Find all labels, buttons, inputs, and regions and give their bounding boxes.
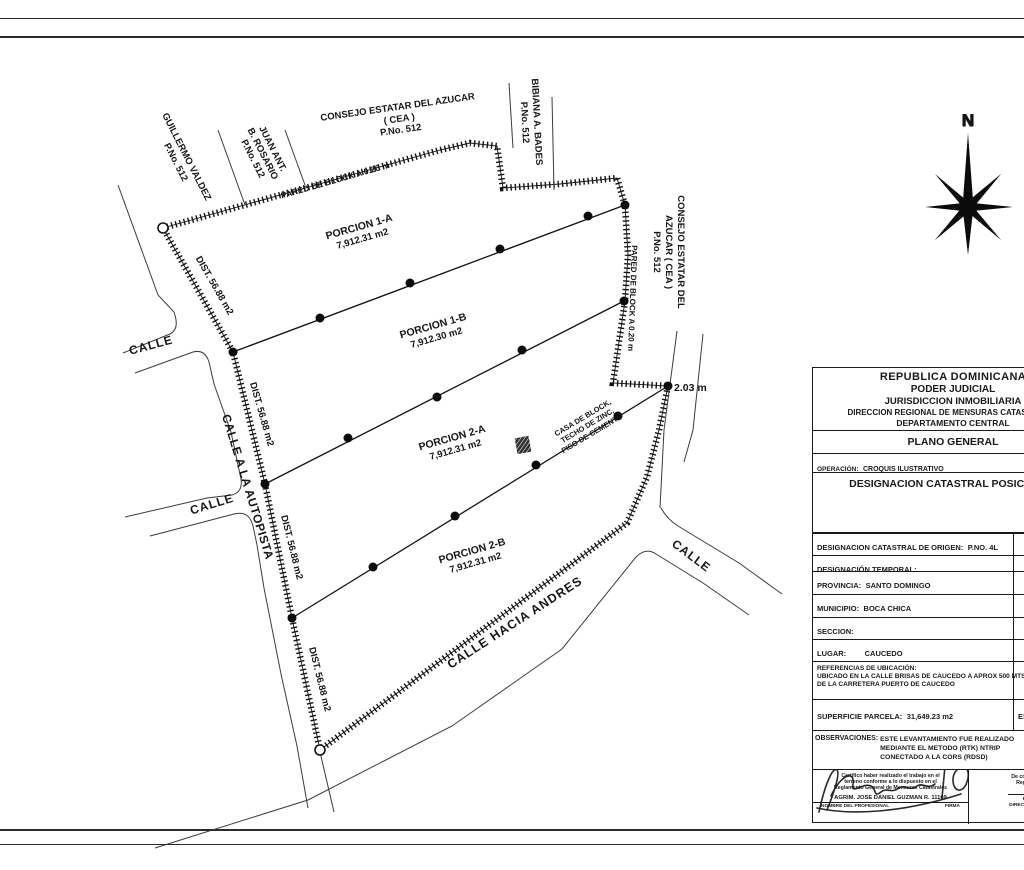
lugar-label: LUGAR: [817,649,846,658]
header-poder: PODER JUDICIAL [813,384,1024,395]
observaciones-line1: ESTE LEVANTAMIENTO FUE REALIZADO [880,735,1014,744]
superficie-value: 31,649.23 m2 [907,712,953,721]
designacion-posicional-row: DESIGNACION CATASTRAL POSICIONAL [813,473,1024,534]
road-below-vertex [320,752,334,812]
origen-row: DESIGNACION CATASTRAL DE ORIGEN: P.NO. 4… [813,534,1024,556]
observaciones-line2: MEDIANTE EL METODO (RTK) NTRIP [880,744,1014,753]
municipio-row: MUNICIPIO: BOCA CHICA [813,595,1024,618]
parcel-label-2a: PORCION 2-A 7,912.31 m2 [417,423,490,465]
seccion-label: SECCION: [817,627,854,636]
north-arrow: N [902,111,1024,273]
label-consejo-right: CONSEJO ESTATAR DEL AZUCAR ( CEA ) P.No.… [651,195,686,309]
provincia-row: PROVINCIA: SANTO DOMINGO [813,572,1024,595]
referencias-line2: DE LA CARRETERA PUERTO DE CAUCEDO [817,681,1009,689]
parcel-label-1a: PORCION 1-A 7,912.31 m2 [324,212,397,254]
conformidad-line2: Reglamento [969,780,1024,786]
origen-value: P.NO. 4L [968,543,998,552]
firma-label: FIRMA [945,804,960,809]
operacion-label: OPERACIÓN: [817,466,859,473]
superficie-row: SUPERFICIE PARCELA: 31,649.23 m2 ESCALA [813,700,1024,731]
road-label-calle-w: CALLE [188,491,235,518]
lugar-value: CAUCEDO [865,649,903,658]
road-label-hacia-andres: CALLE HACIA ANDRES [445,574,585,672]
conformidad-cell: De conformidad Reglamento FECHA DIRECCIO… [969,770,1024,824]
cert-line3: Reglamento General de Mensuras Catastral… [813,785,968,791]
label-guillermo: GUILLERMO VALDEZ P.No. 512 [149,111,214,208]
bibiana-name: BIBIANA A. BADES [529,78,545,165]
north-letter: N [962,111,974,130]
label-juan: JUAN ANT. B. ROSARIO P.No. 512 [235,121,290,186]
title-block-header: REPUBLICA DOMINICANA PODER JUDICIAL JURI… [813,368,1024,431]
cert-line1: Certifico haber realizado el trabajo en … [813,770,968,779]
operacion-row: OPERACIÓN: CROQUIS ILUSTRATIVO [813,454,1024,473]
referencias-line1: UBICADO EN LA CALLE BRISAS DE CAUCEDO A … [817,673,1009,681]
origen-label: DESIGNACION CATASTRAL DE ORIGEN: [817,543,963,552]
road-hacia-andres-south [155,551,749,848]
provincia-label: PROVINCIA: [817,581,861,590]
conformidad-signature-line [1008,794,1024,795]
observaciones-line3: CONECTADO A LA CORS (RDSD) [880,753,1014,762]
seccion-row: SECCION: [813,618,1024,640]
house-symbol [515,436,532,454]
operacion-value: CROQUIS ILUSTRATIVO [863,466,944,473]
referencias-label: REFERENCIAS DE UBICACIÓN: [817,665,1009,673]
measure-2-03: 2.03 m [674,382,707,394]
municipio-value: BOCA CHICA [864,604,912,613]
road-east-1 [660,331,677,508]
header-jurisdiccion: JURISDICCION INMOBILIARIA [813,396,1024,407]
parcel-label-1b: PORCION 1-B 7,912.30 m2 [398,311,471,353]
conformidad-line1: De conformidad [969,770,1024,780]
road-label-calle-e: CALLE [669,537,713,575]
road-label-calle-nw: CALLE [127,333,174,358]
nombre-profesional-label: NOMBRE DEL PROFESIONAL [821,804,889,809]
consejo-right-line1: CONSEJO ESTATAR DEL [675,195,686,309]
header-country: REPUBLICA DOMINICANA [813,371,1024,383]
temporal-row: DESIGNACIÓN TEMPORAL: [813,556,1024,572]
house-label: CASA DE BLOCK, TECHO DE ZINC, PISO DE CE… [550,396,624,455]
consejo-right-line2: AZUCAR ( CEA ) [663,215,674,289]
label-consejo-top: CONSEJO ESTATAR DEL AZUCAR ( CEA ) P.No.… [320,91,479,146]
dist-label-2: DIST. 56.88 m2 [247,381,276,447]
title-block: REPUBLICA DOMINICANA PODER JUDICIAL JURI… [812,367,1024,823]
firma-row: Certifico haber realizado el trabajo en … [813,770,1024,824]
wall-label-top: PARED DE BLOCK A 0.20 m [280,160,391,201]
observaciones-row: OBSERVACIONES: ESTE LEVANTAMIENTO FUE RE… [813,731,1024,770]
header-departamento: DEPARTAMENTO CENTRAL [813,418,1024,428]
label-bibiana: BIBIANA A. BADES P.No. 512 [517,78,545,166]
lugar-row: LUGAR: CAUCEDO [813,640,1024,662]
observaciones-label: OBSERVACIONES: [815,735,878,769]
referencias-row: REFERENCIAS DE UBICACIÓN: UBICADO EN LA … [813,662,1024,700]
road-east-2 [684,334,703,462]
scanned-survey-sheet: { "plot": { "north": "N", "neighbors": {… [0,0,1024,870]
direccion-label: DIRECCION REGIO [969,803,1024,809]
municipio-label: MUNICIPIO: [817,604,859,613]
escala-label: ESCALA [1018,712,1024,721]
certification-cell: Certifico haber realizado el trabajo en … [813,770,969,824]
superficie-label: SUPERFICIE PARCELA: [817,712,902,721]
parcel-label-2b: PORCION 2-B 7,912.31 m2 [437,536,510,578]
road-w-lower [150,513,308,808]
header-direccion: DIRECCION REGIONAL DE MENSURAS CATASTRAL… [813,408,1024,417]
surveyor-name: AGRIM. JOSE DANIEL GUZMAN R. 11109 [813,795,968,803]
temporal-label: DESIGNACIÓN TEMPORAL: [817,565,917,572]
road-nw-upper [118,185,176,353]
consejo-right-line3: P.No. 512 [651,231,662,273]
bibiana-pno: P.No. 512 [518,101,531,143]
provincia-value: SANTO DOMINGO [866,581,931,590]
plano-general-row: PLANO GENERAL [813,431,1024,454]
